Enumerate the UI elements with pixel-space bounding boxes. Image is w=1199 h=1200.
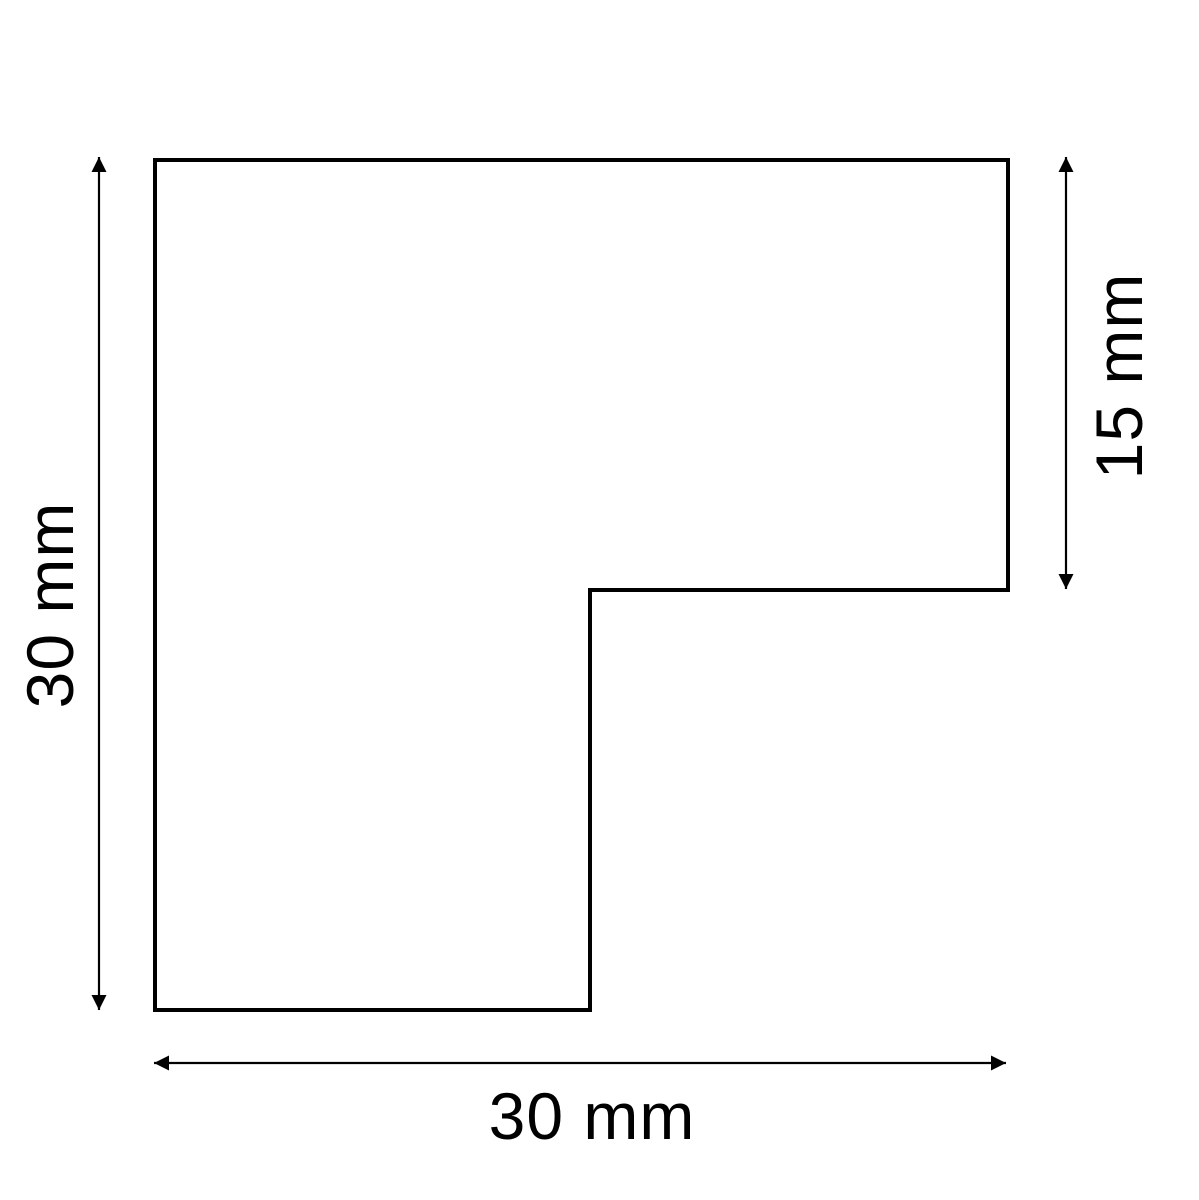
shape-outline: [155, 160, 1008, 1010]
right-dimension-label: 15 mm: [1082, 273, 1156, 480]
bottom-dimension-label: 30 mm: [489, 1079, 696, 1153]
technical-drawing-canvas: 30 mm 15 mm 30 mm: [0, 0, 1199, 1200]
left-dimension-label: 30 mm: [13, 502, 87, 709]
l-profile-dimension-drawing: 30 mm 15 mm 30 mm: [0, 0, 1199, 1200]
